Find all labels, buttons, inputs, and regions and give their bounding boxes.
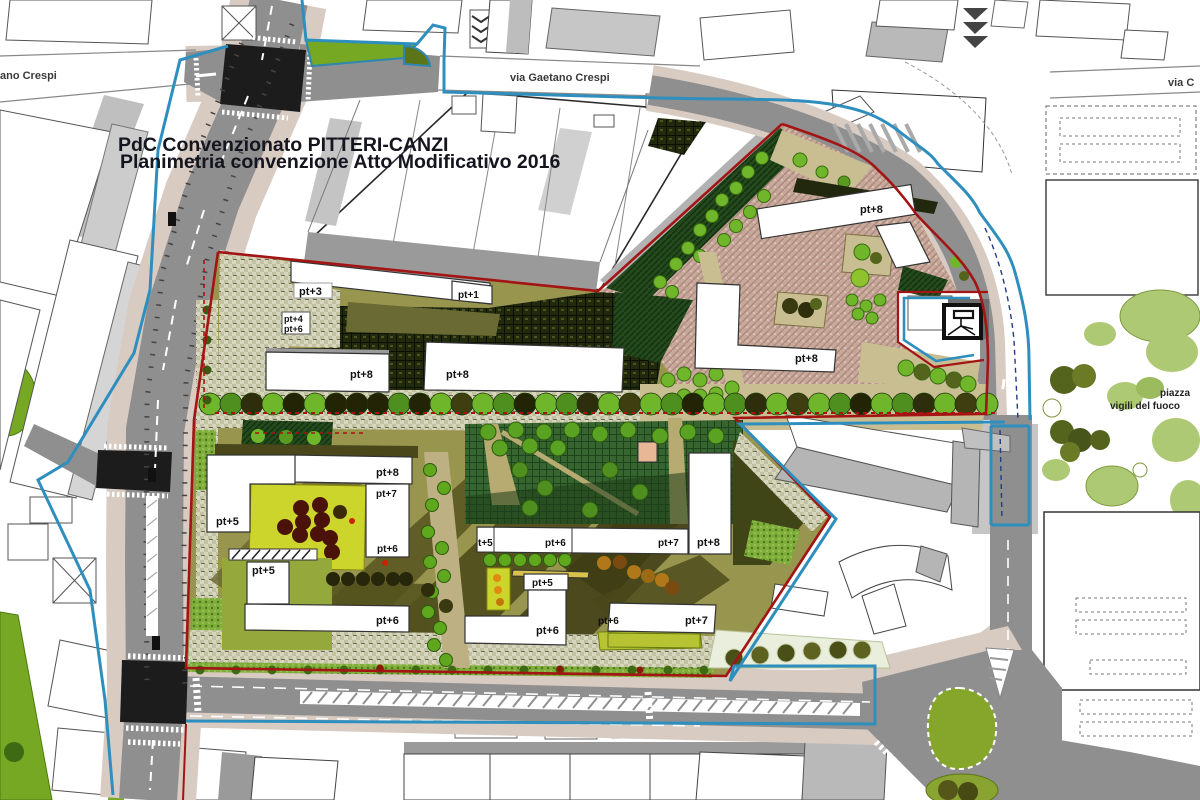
- svg-text:pt+7: pt+7: [658, 538, 679, 549]
- svg-text:pt+8: pt+8: [376, 467, 399, 479]
- svg-text:pt+5: pt+5: [532, 578, 553, 589]
- svg-text:pt+8: pt+8: [860, 204, 883, 216]
- svg-text:pt+8: pt+8: [350, 369, 373, 381]
- svg-text:piazza: piazza: [1160, 388, 1190, 399]
- svg-text:pt+7: pt+7: [376, 489, 397, 500]
- svg-text:pt+5: pt+5: [216, 516, 239, 528]
- svg-text:ano Crespi: ano Crespi: [0, 70, 57, 82]
- svg-text:pt+6: pt+6: [545, 538, 566, 549]
- svg-text:pt+8: pt+8: [795, 353, 818, 365]
- svg-text:pt+6: pt+6: [598, 616, 619, 627]
- svg-text:pt+6: pt+6: [376, 615, 399, 627]
- svg-text:vigili del fuoco: vigili del fuoco: [1110, 401, 1180, 412]
- svg-text:pt+8: pt+8: [446, 369, 469, 381]
- svg-text:Planimetria convenzione Atto M: Planimetria convenzione Atto Modificativ…: [120, 151, 560, 173]
- svg-text:pt+8: pt+8: [697, 537, 720, 549]
- svg-text:pt+4: pt+4: [284, 314, 303, 324]
- svg-text:pt+7: pt+7: [685, 615, 708, 627]
- svg-text:via Gaetano Crespi: via Gaetano Crespi: [510, 72, 610, 84]
- svg-text:t+5: t+5: [478, 538, 493, 549]
- svg-text:pt+3: pt+3: [299, 286, 322, 298]
- svg-text:pt+6: pt+6: [377, 544, 398, 555]
- svg-text:pt+1: pt+1: [458, 290, 479, 301]
- svg-text:via C: via C: [1168, 77, 1194, 89]
- svg-text:pt+6: pt+6: [536, 625, 559, 637]
- svg-text:pt+6: pt+6: [284, 324, 303, 334]
- svg-text:pt+5: pt+5: [252, 565, 275, 577]
